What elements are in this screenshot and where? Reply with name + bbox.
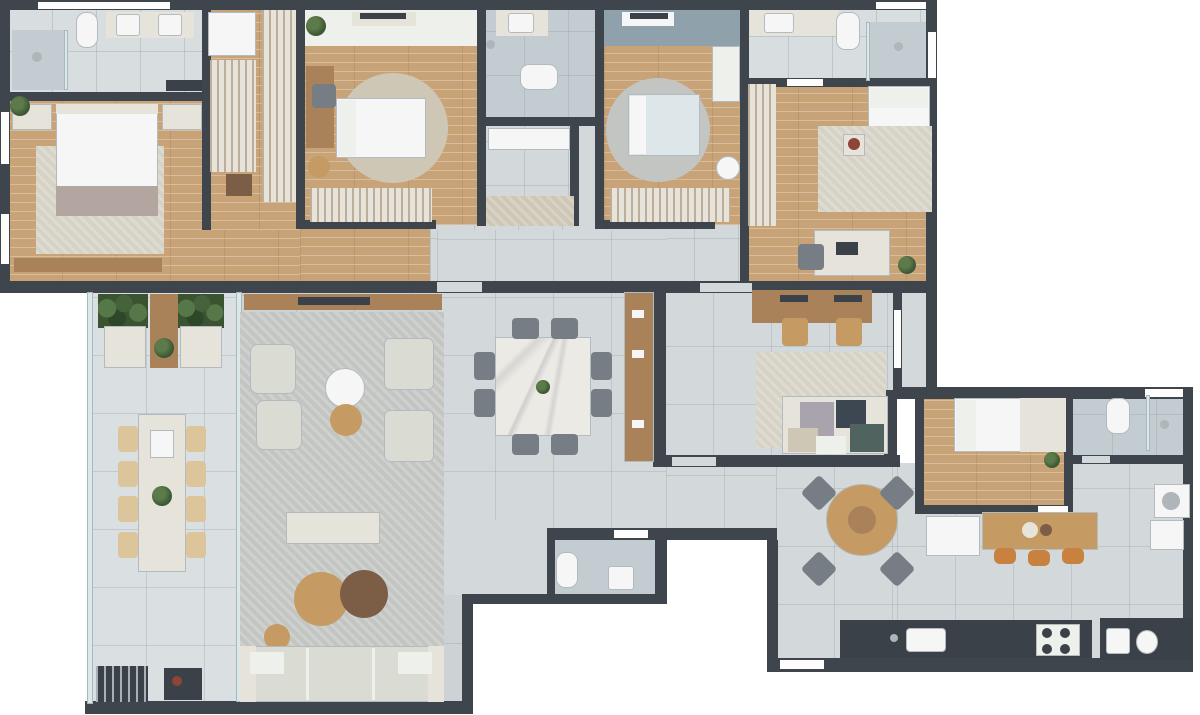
showerhead-bathroom3 [894,42,903,51]
entry-doormat [486,196,574,226]
kitchen-faucet [890,634,898,642]
wall-bathroom2-bottom [477,117,600,126]
wardrobe-bedroom3 [610,188,730,222]
burner-4 [1060,644,1070,654]
door-opening-hall [437,282,482,292]
bar-item-2 [632,350,644,358]
bath-mat-master [166,80,202,91]
bar-item-3 [632,420,644,428]
stool-counter-3 [1062,548,1084,564]
stool-counter-2 [1028,550,1050,566]
sofa-seam-2 [372,648,375,700]
planter-terrace-left [98,294,148,328]
chair-terrace-r3 [186,496,206,522]
bar-item-1 [632,310,644,318]
centerpiece-terrace [152,486,172,506]
window-servicebath [1145,389,1183,397]
pillow-maid [956,400,976,450]
door-opening-bath3 [787,79,823,86]
sofa-seam-1 [306,648,309,700]
chair-terrace-l2 [118,461,138,487]
rug-bedroom4 [818,126,932,212]
wall-powder-left [547,528,555,604]
window-right-bedroom4 [928,32,936,78]
wall-powder-bottom [462,594,667,604]
door-opening-family [672,457,716,466]
closet-island [208,12,256,56]
dining-chair-l1 [474,352,495,380]
laundry-basin [1136,630,1158,654]
blanket-master [56,186,158,216]
toilet-service [1106,398,1130,434]
closet-rack-left [210,60,256,172]
cabinet-service [926,516,980,556]
cabinet-bedroom3 [712,46,740,102]
floor-shower-3 [868,22,932,81]
chair-family-1 [782,318,808,346]
stool-bedroom3 [716,156,740,180]
armchair-living-3 [384,338,434,390]
monitor-family-2 [834,295,862,302]
tray-terrace [150,430,174,458]
toilet-bathroom2 [520,64,558,90]
dining-chair-b2 [551,434,578,455]
burner-3 [1042,644,1052,654]
armchair-living-2 [256,400,302,450]
closet-seat [226,174,252,196]
rail-terrace-glass [87,292,93,704]
door-opening-powder [614,530,648,538]
sink-master-2 [158,14,182,36]
lounge-chair-terrace-1 [104,326,146,368]
floor-plan [0,0,1200,715]
window-masterbath [38,2,170,9]
wall-bedroom3-left [595,8,604,226]
sink-bathroom3 [764,13,794,33]
door-opening-family-top [700,283,752,292]
chair-terrace-r1 [186,426,206,452]
plant-bedroom4 [898,256,916,274]
plant-bedroom2 [306,16,326,36]
chair-terrace-r2 [186,461,206,487]
plant-maid [1044,452,1060,468]
floor-powder-hall [437,520,547,595]
door-leaf-kitchen [780,660,824,669]
cushion-family-3 [850,424,884,452]
dining-chair-l2 [474,389,495,417]
dining-chair-r2 [591,389,612,417]
shower-glass-bathroom3 [866,22,870,81]
bowl-counter-2 [1040,524,1052,536]
coffee-table-brown [340,570,388,618]
shower-glass-service [1146,395,1150,451]
floor-wing-hall-upper [902,283,926,391]
chair-terrace-l4 [118,532,138,558]
planter-terrace-right [178,294,224,328]
round-table-white [325,368,365,408]
laundry-sink [1106,628,1130,654]
closet-rack-right [262,10,296,202]
ottoman-living [286,512,380,544]
shower-drain-master [32,52,42,62]
tv-bedroom2 [360,13,406,19]
nightstand-master-right [162,104,202,130]
showerhead-bathroom2 [486,40,495,49]
shower-glass-master [64,30,68,90]
sink-powder [608,566,634,590]
armchair-living-1 [250,344,296,394]
sink-bathroom2 [508,13,534,33]
chair-bedroom2 [312,84,336,108]
dining-centerpiece [536,380,550,394]
burner-1 [1042,628,1052,638]
headboard-master [56,104,158,114]
floor-wing-corridor [666,467,776,534]
wall-bedroom4-left-low [740,220,749,283]
chair-terrace-l3 [118,496,138,522]
wall-wing-bottom [767,658,1193,672]
barbecue-grill [96,666,148,702]
plant-master-corner [10,96,30,116]
wall-dining-family [653,283,666,467]
chair-terrace-r4 [186,532,206,558]
dresser-master [14,258,162,272]
armchair-living-4 [384,410,434,462]
cushion-bedroom4 [848,138,860,150]
dining-chair-t2 [551,318,578,339]
dryer-service [1150,520,1184,550]
dining-chair-r1 [591,352,612,380]
toilet-master [76,12,98,48]
sofa-cushion-1 [250,652,284,674]
window-left-1 [1,112,9,164]
tv-living [298,297,370,305]
pillow-bedroom4 [870,88,928,108]
sofa-cushion-2 [398,652,432,674]
grill-cart-pot [172,676,182,686]
laptop-bedroom4 [836,242,858,255]
door-leaf-wing [894,310,901,368]
bowl-counter-1 [1022,522,1038,538]
grill-cart [164,668,202,700]
wall-living-bottom [85,701,473,714]
pillow-bedroom2 [338,100,356,156]
stool-bedroom2 [308,156,330,178]
wardrobe-bedroom2 [310,188,432,222]
wall-maid-left [915,397,924,513]
round-table-tan [330,404,362,436]
cushion-family-4 [788,428,818,452]
dining-chair-t1 [512,318,539,339]
plant-pot-terrace [154,338,174,358]
wall-powder-right [655,528,667,604]
entry-cabinet [488,128,570,150]
window-shower3 [876,2,926,9]
floor-hall-sliver [579,126,595,226]
toilet-powder [556,552,578,588]
pillow-bedroom3 [630,96,646,154]
sink-master-1 [116,14,140,36]
showerhead-service [1160,420,1169,429]
wardrobe-bedroom4 [748,84,776,226]
door-opening-servicebath [1082,456,1110,463]
chair-terrace-l1 [118,426,138,452]
stool-counter-1 [994,548,1016,564]
wall-masterbath-bottom [0,92,206,101]
cushion-family-5 [816,436,846,454]
lounge-chair-terrace-2 [180,326,222,368]
tv-bedroom3 [630,13,668,19]
wall-notch-right [767,540,778,666]
floor-bedroom-hall-wood [300,225,430,283]
wall-bedroom2-left [296,8,305,226]
wall-bottom-step [462,594,473,714]
blanket-maid [1020,398,1066,452]
dining-chair-b1 [512,434,539,455]
chair-family-2 [836,318,862,346]
kitchen-sink [906,628,946,652]
round-table-wing-center [848,506,876,534]
burner-2 [1060,628,1070,638]
washer-door [1162,492,1180,510]
window-left-2 [1,214,9,264]
monitor-family-1 [780,295,808,302]
toilet-bathroom3 [836,12,860,50]
chair-bedroom4 [798,244,824,270]
